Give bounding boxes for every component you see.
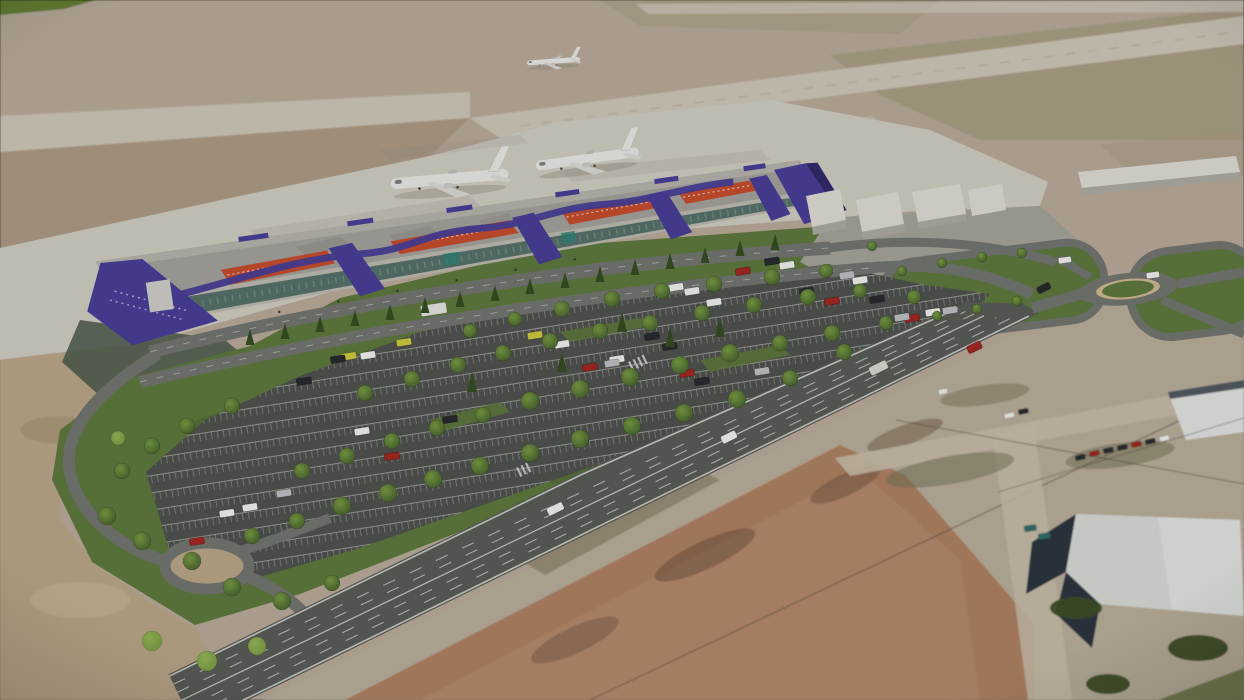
vignette [0,0,1244,700]
airport-rendering-image [0,0,1244,700]
aerial-render-scene [0,0,1244,700]
